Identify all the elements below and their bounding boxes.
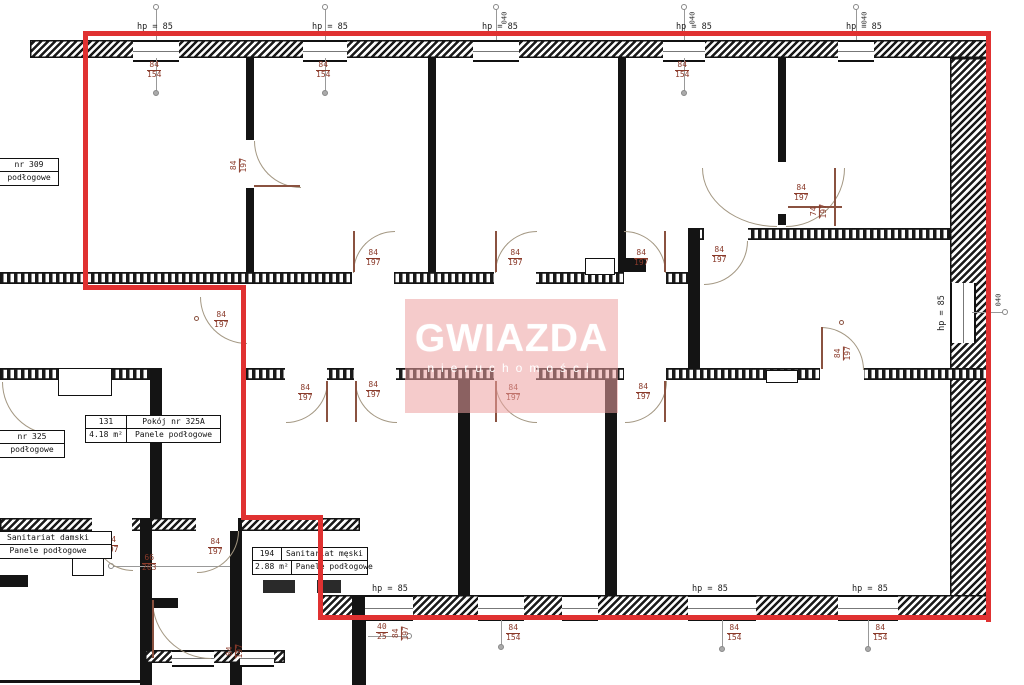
dimension-point: [681, 90, 687, 96]
door-size-label: 84197: [794, 184, 808, 203]
selection-outline-right: [986, 31, 991, 622]
window: [838, 40, 874, 62]
floor-plan: 84197 84197 74197 84197 84197 84197 8419…: [0, 0, 1024, 685]
sill-height-label: hp = 85: [852, 584, 888, 594]
room-name: Pokój nr 325A: [127, 416, 220, 428]
door-size-label: 84197: [214, 311, 228, 330]
dimension-label: 4025: [376, 623, 388, 642]
selection-outline-bottom: [318, 615, 991, 620]
door-leaf: [821, 327, 823, 369]
dimension-point: [498, 644, 504, 650]
door-size-label: 66203: [142, 554, 156, 573]
dimension-point: [322, 4, 328, 10]
room-table-325: nr 325 podłogowe: [0, 430, 65, 458]
sill-height-label: hp = 85: [372, 584, 408, 594]
dimension-point: [865, 646, 871, 652]
room-floor: podłogowe: [0, 444, 64, 456]
dimension-point: [153, 4, 159, 10]
room-number: 194: [253, 548, 282, 560]
watermark: GWIAZDA nieruchomości: [405, 299, 618, 413]
dimension-point: [153, 90, 159, 96]
door-size-label: 84197: [634, 249, 648, 268]
window: [950, 283, 976, 343]
partition-wall: [150, 368, 162, 518]
window-size-label: 84154: [873, 624, 887, 643]
selection-outline-segment: [83, 285, 246, 290]
window-size-label: 84154: [675, 61, 689, 80]
door-opening: [354, 368, 396, 380]
door-opening: [285, 368, 327, 380]
dimension-point: [322, 90, 328, 96]
partition-wall: [352, 595, 366, 685]
dimension-stem: [722, 620, 723, 648]
room-floor: Panele podłogowe: [0, 545, 111, 557]
sill-height-label: hp = 85: [937, 295, 947, 331]
selection-outline-segment: [318, 515, 323, 620]
dimension-label: 040: [994, 294, 1002, 307]
watermark-subtitle: nieruchomości: [427, 361, 595, 375]
door-size-label: 84197: [392, 626, 411, 640]
door-opening: [196, 518, 238, 531]
room-table-325a: 131Pokój nr 325A 4.18 m²Panele podłogowe: [85, 415, 221, 443]
room-floor: Panele podłogowe: [127, 429, 220, 441]
selection-outline-segment: [241, 515, 323, 520]
door-size-label: 84197: [366, 381, 380, 400]
partition-wall: [428, 58, 436, 272]
dimension-point: [681, 4, 687, 10]
door-hinge-mark: [839, 320, 844, 325]
dimension-stem: [868, 620, 869, 648]
door-size-label: 84197: [366, 249, 380, 268]
window-size-label: 84154: [506, 624, 520, 643]
door-hinge-mark: [194, 316, 199, 321]
dimension-label: 040: [860, 12, 868, 25]
door-size-label: 84197: [712, 246, 726, 265]
door-leaf: [353, 231, 355, 272]
room-name: nr 309: [0, 159, 58, 171]
sill-height-label: hp = 85: [692, 584, 728, 594]
wall-stub: [0, 575, 28, 587]
door-size-label: 84197: [298, 384, 312, 403]
room-number: 131: [86, 416, 127, 428]
selection-outline-segment: [241, 285, 246, 520]
window: [473, 40, 519, 62]
door-size-label: 84197: [636, 383, 650, 402]
room-area: 2.88 m²: [253, 561, 292, 573]
room-table-damski: Sanitariat damski Panele podłogowe: [0, 531, 112, 559]
door-opening: [352, 272, 394, 284]
door-size-label: 84197: [834, 346, 853, 360]
door-leaf: [152, 600, 154, 658]
room-floor: podłogowe: [0, 172, 58, 184]
room-area: 4.18 m²: [86, 429, 127, 441]
door-opening: [624, 368, 666, 380]
door-opening: [92, 518, 132, 531]
dimension-stem: [501, 620, 502, 646]
room-table-309: nr 309 podłogowe: [0, 158, 59, 186]
wall-niche: [585, 258, 615, 275]
dimension-point: [853, 4, 859, 10]
wall-niche: [766, 370, 798, 383]
radiator: [263, 580, 295, 593]
door-arc: [2, 382, 55, 435]
selection-outline-left: [83, 31, 88, 290]
door-arc: [702, 168, 777, 227]
room-name: Sanitariat damski: [0, 532, 111, 544]
room-name: nr 325: [0, 431, 64, 443]
door-leaf: [495, 231, 497, 272]
door-leaf: [355, 381, 357, 422]
door-leaf: [326, 381, 328, 422]
door-size-label: 84197: [230, 158, 249, 172]
dimension-point: [719, 646, 725, 652]
door-arc: [254, 141, 301, 188]
wall-vertical: [688, 228, 700, 375]
door-size-label: 74197: [810, 204, 829, 218]
dimension-point: [1002, 309, 1008, 315]
room-floor: Panele podłogowe: [292, 561, 377, 573]
window-size-label: 84154: [727, 624, 741, 643]
door-leaf: [664, 381, 666, 422]
door-leaf: [664, 231, 666, 272]
window: [240, 650, 274, 667]
room-name: Sanitariat męski: [282, 548, 367, 560]
dimension-label: 040: [500, 12, 508, 25]
window-size-label: 84154: [147, 61, 161, 80]
door-size-label: 84197: [508, 249, 522, 268]
wall-edge-line: [0, 680, 142, 683]
dimension-point: [493, 4, 499, 10]
door-leaf: [834, 168, 836, 226]
watermark-title: GWIAZDA: [415, 319, 608, 358]
door-opening: [494, 272, 536, 284]
door-opening: [624, 272, 666, 284]
room-table-meski: 194Sanitariat męski 2.88 m²Panele podłog…: [252, 547, 368, 575]
window-size-label: 84154: [316, 61, 330, 80]
door-size-label: 84197: [208, 538, 222, 557]
door-size-label: 84197: [226, 644, 245, 658]
selection-outline-top: [83, 31, 991, 36]
dimension-label: 040: [688, 12, 696, 25]
door-opening: [778, 162, 786, 214]
door-opening: [704, 228, 748, 240]
door-leaf: [254, 185, 300, 187]
sink-counter: [58, 368, 112, 396]
